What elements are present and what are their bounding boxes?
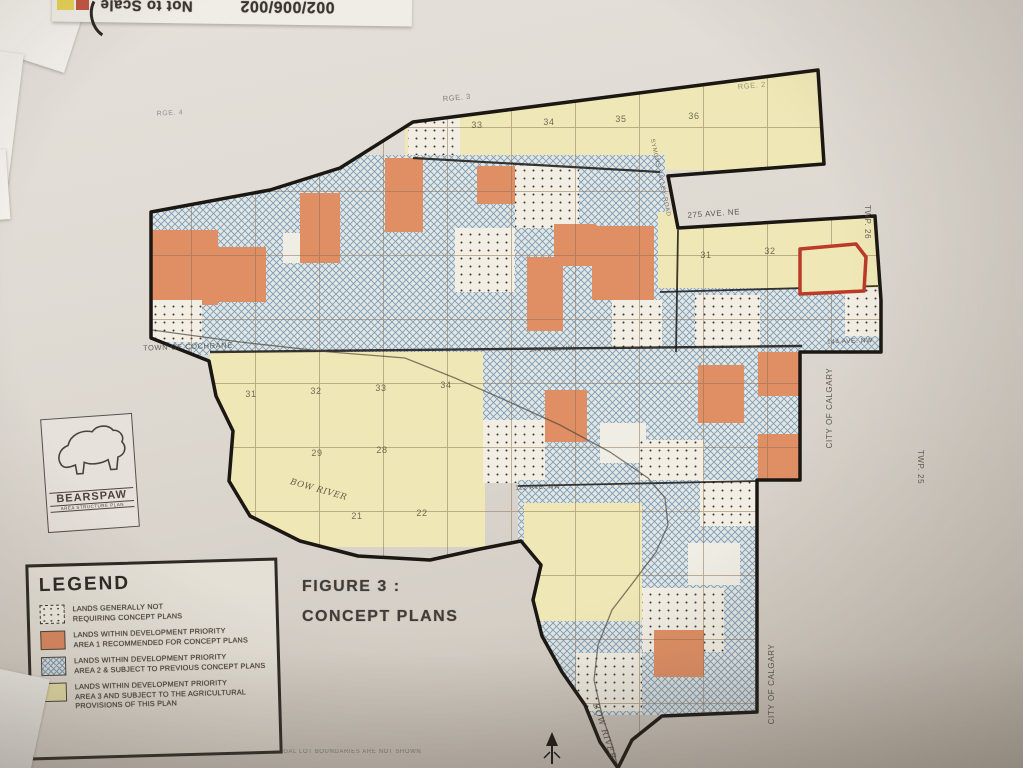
legend-title: LEGEND <box>39 569 266 597</box>
legend-items: LANDS GENERALLY NOTREQUIRING CONCEPT PLA… <box>39 599 268 712</box>
map-label: RGE. 4 <box>156 109 183 117</box>
map-label: 275 AVE. NE <box>687 207 740 220</box>
legend-box: LEGEND LANDS GENERALLY NOTREQUIRING CONC… <box>25 558 282 761</box>
map-label: CITY OF CALGARY <box>767 644 776 725</box>
section-number: 32 <box>764 246 775 256</box>
paper-content: 3334353631323132333429282122RGE. 4RGE. 3… <box>0 0 1023 768</box>
map-label: RGE. 3 <box>442 92 471 103</box>
north-arrow-head <box>546 732 558 746</box>
legend-item-text: LANDS WITHIN DEVELOPMENT PRIORITYAREA 3 … <box>75 677 247 710</box>
section-number: 34 <box>543 117 554 127</box>
section-number: 29 <box>311 448 322 458</box>
section-number: 22 <box>416 508 427 518</box>
legend-item-text: LANDS GENERALLY NOTREQUIRING CONCEPT PLA… <box>72 601 182 623</box>
section-number: 33 <box>471 120 482 130</box>
yellow-edge-mark <box>57 0 74 10</box>
figure-title: FIGURE 3 : CONCEPT PLANS <box>302 578 458 638</box>
legend-item: LANDS WITHIN DEVELOPMENT PRIORITYAREA 2 … <box>41 651 267 676</box>
doc-number: 002/006/002 <box>240 0 335 15</box>
map-label: TWP. 26 <box>863 205 872 239</box>
section-number: 34 <box>440 380 451 390</box>
section-number: 28 <box>376 445 387 455</box>
map-label: LEGAL LOT BOUNDARIES ARE NOT SHOWN <box>275 749 422 755</box>
legend-item: LANDS WITHIN DEVELOPMENT PRIORITYAREA 1 … <box>40 625 266 650</box>
legend-item-text: LANDS WITHIN DEVELOPMENT PRIORITYAREA 2 … <box>74 651 266 675</box>
section-number: 21 <box>351 511 362 521</box>
red-edge-mark <box>76 0 89 10</box>
section-number: 33 <box>375 383 386 393</box>
section-number: 31 <box>245 389 256 399</box>
map-label: TWP. 25 <box>916 450 925 484</box>
section-number: 31 <box>700 250 711 260</box>
section-number: 32 <box>310 386 321 396</box>
legend-item: LANDS WITHIN DEVELOPMENT PRIORITYAREA 3 … <box>42 677 269 712</box>
legend-swatch-hatch <box>41 656 67 676</box>
section-number: 35 <box>615 114 626 124</box>
legend-item: LANDS GENERALLY NOTREQUIRING CONCEPT PLA… <box>39 599 265 624</box>
north-arrow-icon <box>544 732 560 764</box>
bear-icon <box>46 418 130 485</box>
photo-of-plan-document: 3334353631323132333429282122RGE. 4RGE. 3… <box>0 0 1023 768</box>
map-label: CITY OF CALGARY <box>825 368 834 449</box>
figure-number: FIGURE 3 : <box>302 578 458 596</box>
bearspaw-logo: BEARSPAW AREA STRUCTURE PLAN <box>40 413 140 533</box>
legend-swatch-dots <box>39 604 65 624</box>
section-number: 36 <box>688 111 699 121</box>
legend-item-text: LANDS WITHIN DEVELOPMENT PRIORITYAREA 1 … <box>73 625 248 649</box>
figure-name: CONCEPT PLANS <box>302 608 458 626</box>
legend-swatch-orange <box>40 630 66 650</box>
highlighted-parcel <box>800 244 866 294</box>
